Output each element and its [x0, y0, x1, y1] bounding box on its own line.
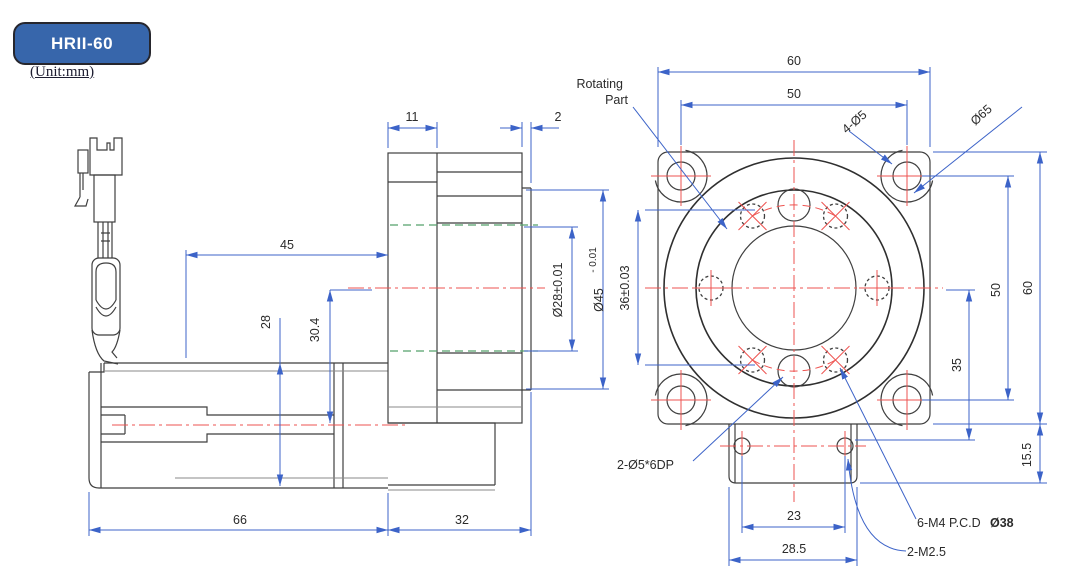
rotating-part-leader: [633, 107, 727, 229]
side-view-dim-texts: 11 2 45 28 30.4 Ø28±0.01 Ø45 - 0.01 66 3…: [233, 110, 606, 527]
dim-head-length: 32: [455, 513, 469, 527]
rotating-part-label-1: Rotating: [576, 77, 623, 91]
flange-dia-label: Ø65: [968, 102, 995, 128]
connector-assembly: [75, 138, 122, 364]
dim-right-outer: 60: [1021, 281, 1035, 295]
pin-holes-label: 2-Ø5*6DP: [617, 458, 674, 472]
dim-left-pilot: 36±0.03: [618, 265, 632, 310]
dim-axis-offset: 30.4: [308, 318, 322, 342]
dim-top-inner: 50: [787, 87, 801, 101]
front-view-dimensions: [633, 67, 1047, 566]
dim-lip: 2: [555, 110, 562, 124]
dim-right-mid: 35: [950, 358, 964, 372]
dim-right-inner: 50: [989, 283, 1003, 297]
corner-holes-label: 4-Ø5: [839, 108, 869, 137]
mounting-tab: [729, 424, 857, 483]
m4-label-prefix: 6-M4 P.C.D: [917, 516, 981, 530]
front-center-lines: [645, 140, 943, 502]
dim-motor-length: 66: [233, 513, 247, 527]
dim-body-height: 28: [259, 315, 273, 329]
dim-bore-dia: Ø28±0.01: [551, 263, 565, 318]
m4-label-pcd: Ø38: [990, 516, 1014, 530]
dim-tab-height: 15.5: [1020, 443, 1034, 467]
drawing-page: HRII-60 (Unit:mm): [0, 0, 1077, 578]
dim-boss-dia: Ø45: [592, 288, 606, 312]
front-view: [645, 140, 943, 502]
actuator-head-inner-lines: [388, 407, 522, 490]
dim-top-width: 11: [406, 110, 419, 124]
side-center-lines: [112, 288, 545, 425]
actuator-head-section: [388, 153, 531, 485]
bottom-taps-label: 2-M2.5: [907, 545, 946, 559]
dim-top-outer: 60: [787, 54, 801, 68]
side-view: [75, 138, 545, 490]
pin-holes-leader: [693, 377, 783, 461]
dim-boss-tol: - 0.01: [588, 247, 599, 273]
corner-holes-leader: [849, 131, 892, 164]
technical-drawing: 11 2 45 28 30.4 Ø28±0.01 Ø45 - 0.01 66 3…: [0, 0, 1077, 578]
dim-mid-length: 45: [280, 238, 294, 252]
rotating-part-label-2: Part: [605, 93, 628, 107]
dim-tab-width: 28.5: [782, 542, 806, 556]
dim-tab-holes: 23: [787, 509, 801, 523]
